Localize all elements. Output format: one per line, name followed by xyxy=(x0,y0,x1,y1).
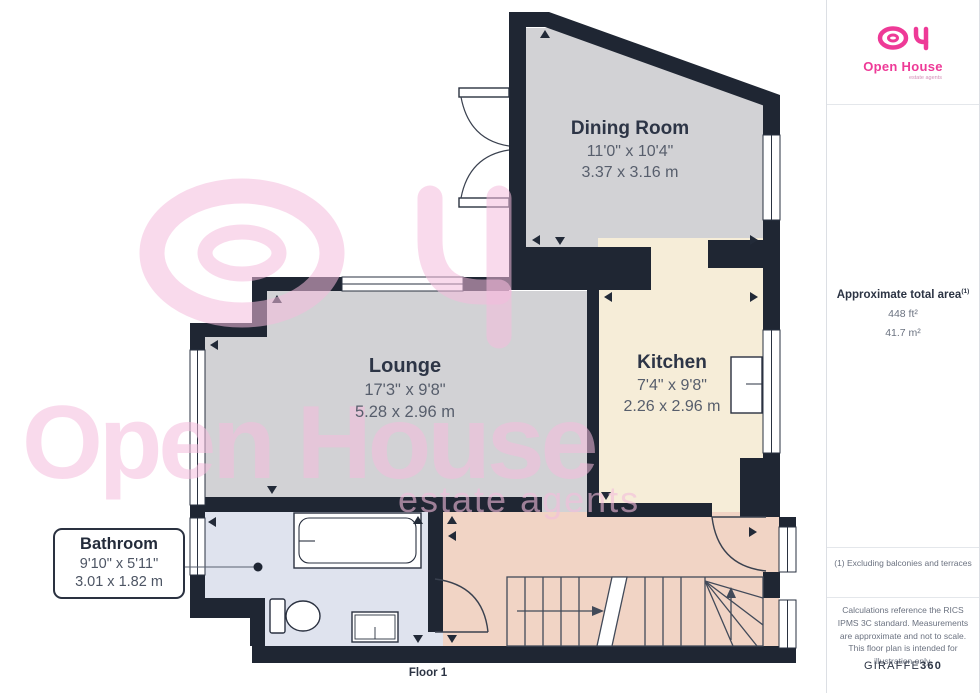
room-dims-metric: 3.01 x 1.82 m xyxy=(55,574,183,590)
floorplan-canvas: Open House estate agents Dining Room 11'… xyxy=(0,0,826,693)
agency-logo-icon xyxy=(872,26,934,52)
room-dims-metric: 3.37 x 3.16 m xyxy=(535,164,725,182)
room-label-lounge: Lounge 17'3" x 9'8" 5.28 x 2.96 m xyxy=(310,355,500,422)
room-dims-imperial: 9'10" x 5'11" xyxy=(55,556,183,572)
room-name: Kitchen xyxy=(582,352,762,374)
floorplan-page: Open House estate agents Dining Room 11'… xyxy=(0,0,980,693)
area-title-text: Approximate total area xyxy=(837,289,962,301)
room-dims-metric: 2.26 x 2.96 m xyxy=(582,398,762,416)
room-dims-metric: 5.28 x 2.96 m xyxy=(310,403,500,422)
room-name: Dining Room xyxy=(535,118,725,140)
agency-logo-brand: Open House xyxy=(827,59,979,74)
room-name: Bathroom xyxy=(55,535,183,554)
area-value-m: 41.7 m² xyxy=(827,327,979,339)
room-labels: Dining Room 11'0" x 10'4" 3.37 x 3.16 m … xyxy=(0,0,826,693)
area-footnote: (1) Excluding balconies and terraces xyxy=(827,558,979,568)
room-dims-imperial: 11'0" x 10'4" xyxy=(535,143,725,161)
area-value-ft: 448 ft² xyxy=(827,308,979,320)
room-name: Lounge xyxy=(310,355,500,378)
agency-logo: Open House estate agents xyxy=(827,26,979,81)
area-title: Approximate total area(1) xyxy=(827,288,979,301)
area-title-superscript: (1) xyxy=(961,288,969,295)
sidebar-divider xyxy=(827,547,979,548)
info-sidebar: Open House estate agents Approximate tot… xyxy=(826,0,980,693)
sidebar-divider xyxy=(827,104,979,105)
room-label-dining: Dining Room 11'0" x 10'4" 3.37 x 3.16 m xyxy=(535,118,725,182)
giraffe360-brand-number: 360 xyxy=(920,660,942,672)
area-summary: Approximate total area(1) 448 ft² 41.7 m… xyxy=(827,288,979,339)
floor-label: Floor 1 xyxy=(368,667,488,679)
room-dims-imperial: 17'3" x 9'8" xyxy=(310,381,500,400)
agency-logo-tagline: estate agents xyxy=(864,75,942,81)
room-callout-bathroom: Bathroom 9'10" x 5'11" 3.01 x 1.82 m xyxy=(53,528,185,599)
room-label-kitchen: Kitchen 7'4" x 9'8" 2.26 x 2.96 m xyxy=(582,352,762,416)
room-dims-imperial: 7'4" x 9'8" xyxy=(582,377,762,395)
disclaimer-text: Calculations reference the RICS IPMS 3C … xyxy=(835,604,971,668)
giraffe360-brand: GIRAFFE360 xyxy=(827,660,979,672)
sidebar-divider xyxy=(827,597,979,598)
giraffe360-brand-name: GIRAFFE xyxy=(864,660,920,672)
